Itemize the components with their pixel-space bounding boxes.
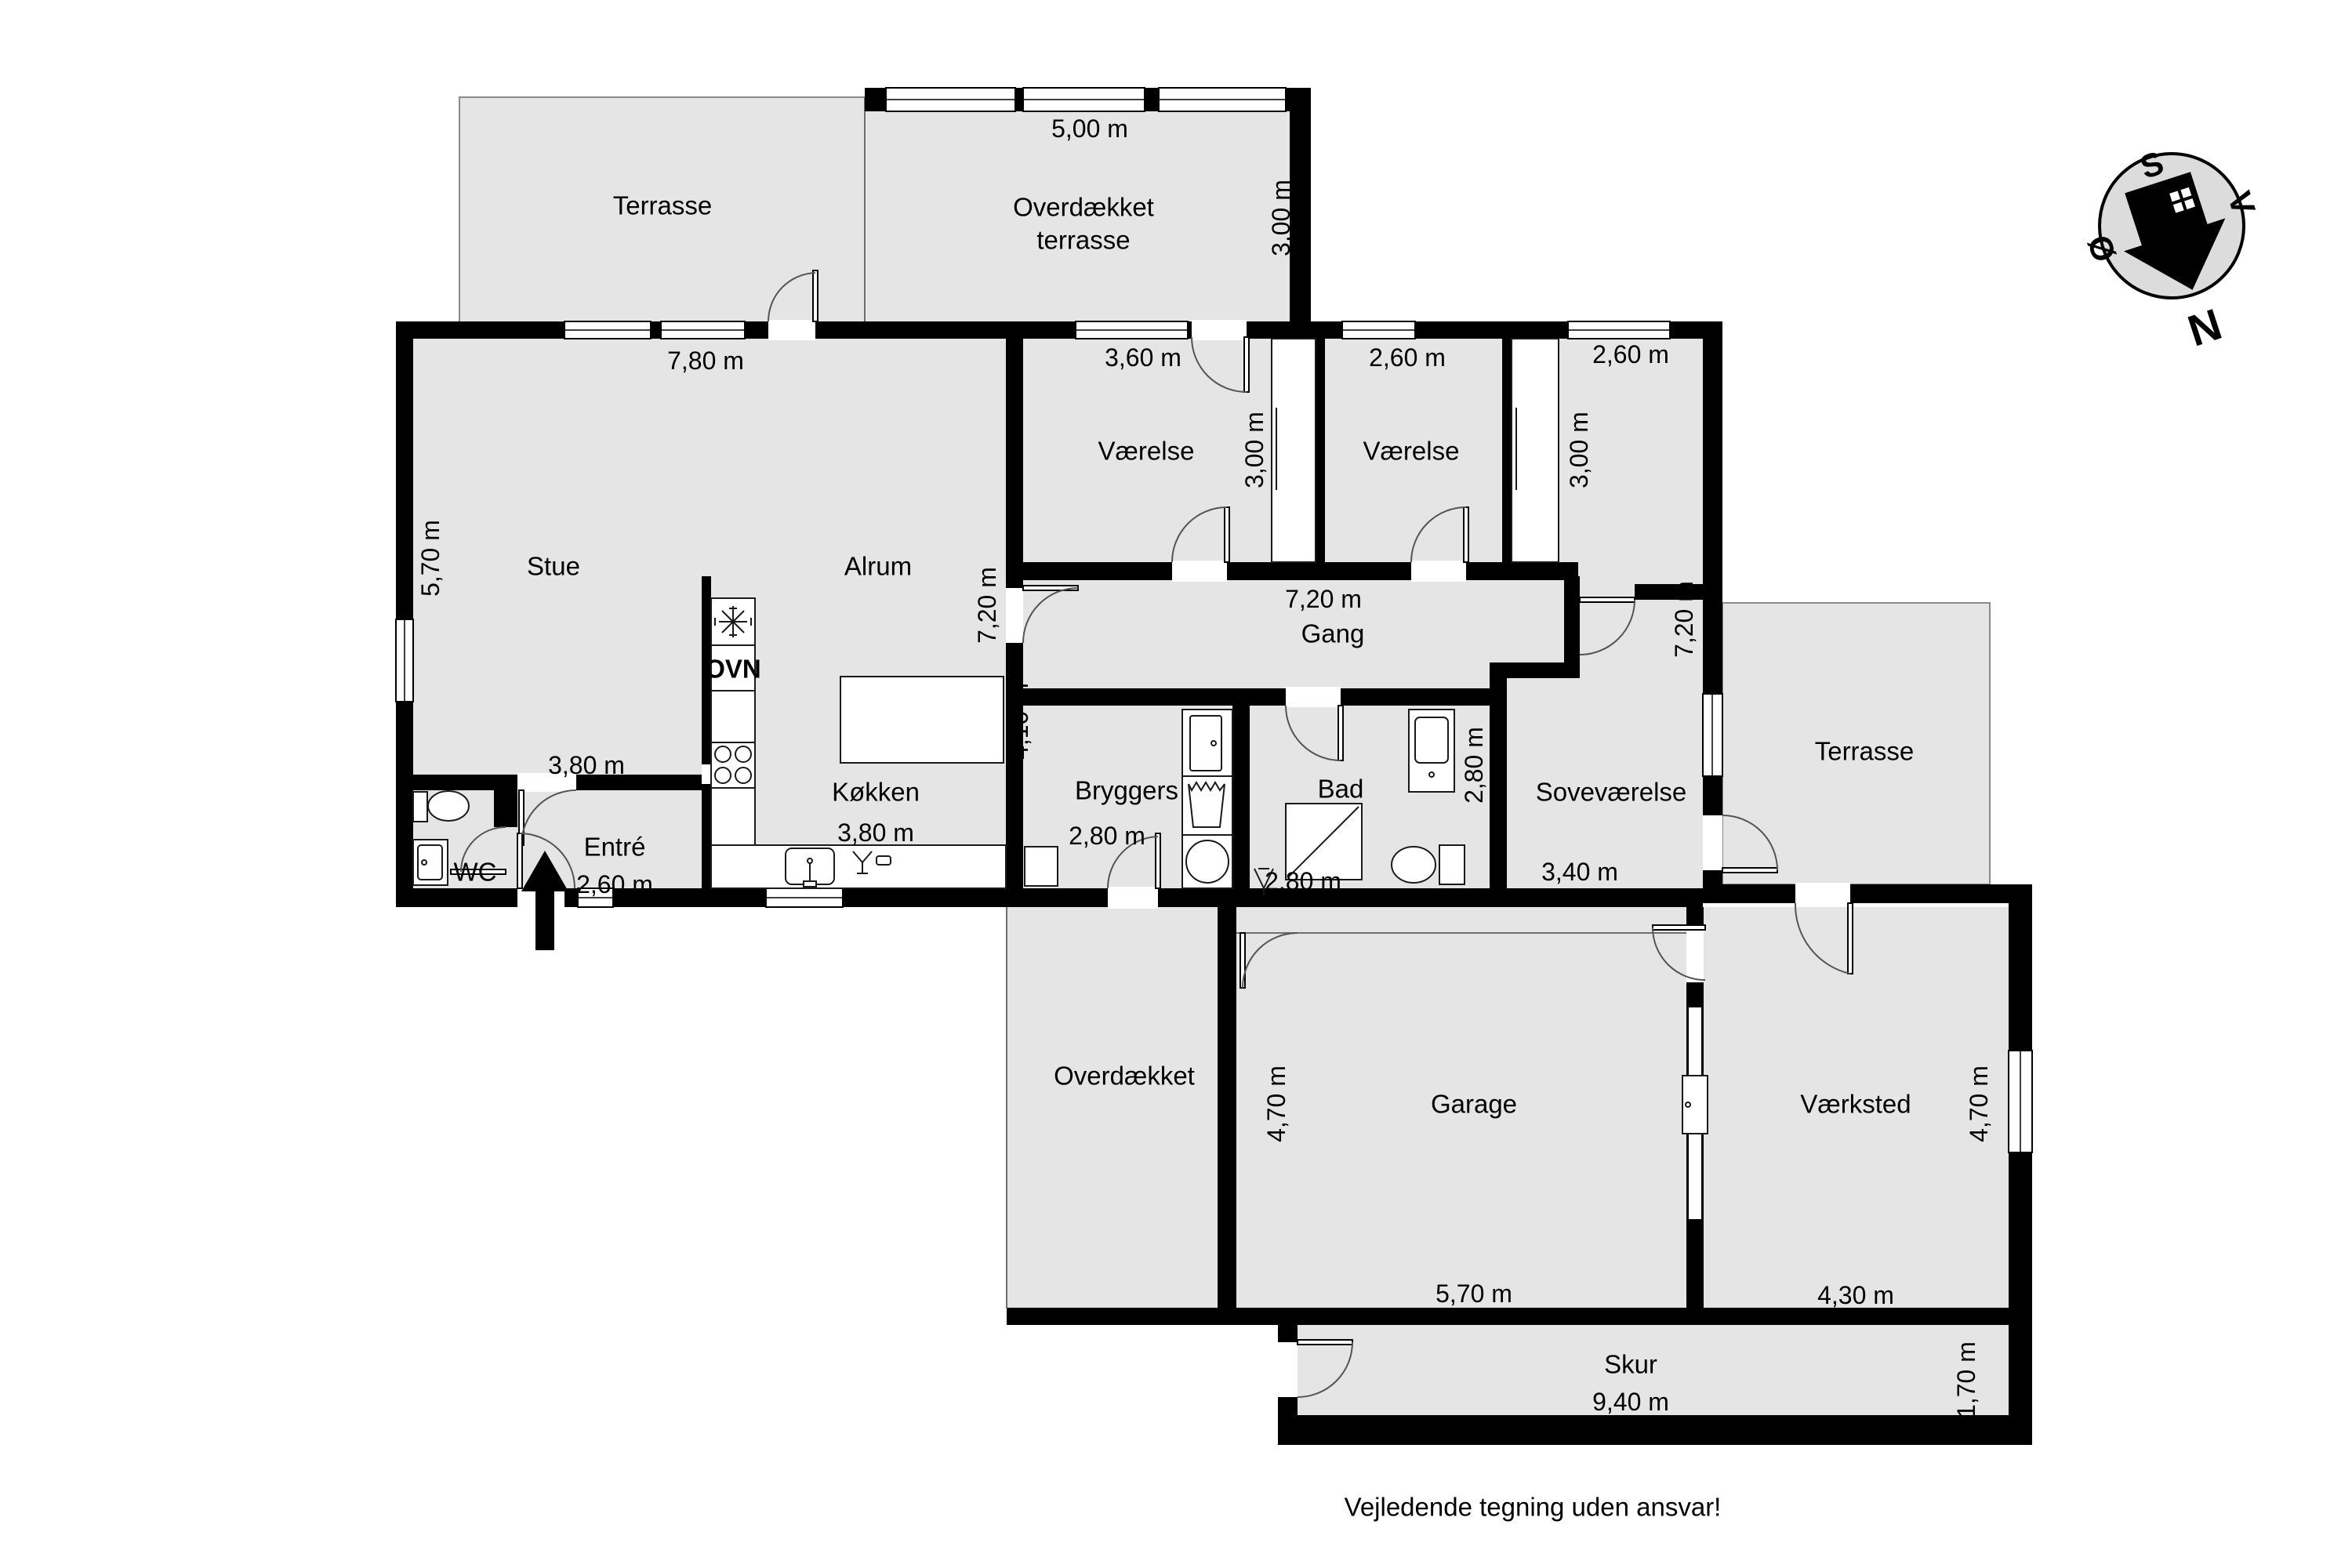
closet-vaerelse3: [1512, 339, 1559, 562]
wall-house-left: [396, 321, 413, 906]
label-dim-3-00-v3: 3,00 m: [1565, 412, 1593, 488]
label-dim-1-70: 1,70 m: [1952, 1341, 1980, 1418]
floor-plan-page: S V Ø N TerrasseOverdækketterrasseStueAl…: [0, 0, 2352, 1568]
window: [1342, 321, 1415, 339]
label-dim-3-00-ct: 3,00 m: [1267, 180, 1295, 256]
kitchen-counter: [711, 845, 1006, 888]
label-koekken: Køkken: [832, 778, 920, 807]
stove-icon: [711, 742, 755, 788]
label-sovevaerelse: Soveværelse: [1536, 778, 1687, 807]
label-skur: Skur: [1604, 1350, 1657, 1379]
wall-gang-stub: [1564, 576, 1580, 678]
label-dim-3-80-koekken: 3,80 m: [837, 818, 914, 847]
wall-garage-left: [1218, 907, 1236, 1325]
wall-gang-bottom: [1023, 688, 1490, 706]
label-overdaekket-terrasse-1: Overdækket: [1013, 193, 1154, 222]
label-entre: Entré: [584, 833, 646, 862]
wall-block-right: [2009, 884, 2032, 1445]
wall-v2-v3: [1502, 339, 1512, 562]
label-overdaekket-terrasse-2: terrasse: [1036, 226, 1130, 255]
window: [396, 619, 413, 702]
window: [2009, 1051, 2032, 1152]
label-bad: Bad: [1318, 775, 1364, 804]
bath-toilet-icon: [1392, 845, 1465, 884]
label-dim-5-70-garage: 5,70 m: [1436, 1279, 1512, 1308]
label-dim-7-20-gang: 7,20 m: [1285, 585, 1362, 613]
label-vaerelse-2: Værelse: [1363, 437, 1460, 466]
compass-north: N: [2182, 299, 2227, 355]
window: [1568, 321, 1670, 339]
wall-bad-sove: [1490, 678, 1507, 888]
label-dim-4-70-garage: 4,70 m: [1262, 1065, 1290, 1142]
label-garage: Garage: [1431, 1090, 1517, 1119]
label-vaerelse-1: Værelse: [1098, 437, 1195, 466]
bath-vanity-icon: [1409, 710, 1454, 792]
label-dim-9-40: 9,40 m: [1592, 1388, 1669, 1416]
label-dim-3-80-stue: 3,80 m: [548, 751, 625, 779]
wc-sink-icon: [413, 840, 448, 885]
window: [661, 321, 745, 339]
label-overdaekket: Overdækket: [1054, 1062, 1195, 1091]
window: [1023, 88, 1145, 111]
floor-plan-drawing: S V Ø N TerrasseOverdækketterrasseStueAl…: [0, 0, 2352, 1568]
label-disclaimer: Vejledende tegning uden ansvar!: [1345, 1493, 1722, 1522]
gv-door-panel: [1682, 1076, 1708, 1134]
label-dim-2-80-bad: 2,80 m: [1265, 867, 1341, 895]
washing-machine-icon: [1182, 835, 1232, 888]
label-dim-3-60-v1: 3,60 m: [1105, 343, 1181, 372]
wall-block-bottom: [1007, 1308, 2009, 1325]
window: [1703, 694, 1722, 776]
window: [1159, 88, 1286, 111]
wall-under-terrace: [1719, 884, 2009, 903]
label-dim-5-00: 5,00 m: [1051, 114, 1128, 143]
bryggers-cabinet: [1025, 847, 1058, 886]
label-terrasse-right: Terrasse: [1815, 737, 1915, 766]
compass-rose: S V Ø N: [2059, 119, 2299, 379]
label-dim-2-60-entre: 2,60 m: [576, 870, 653, 898]
label-dim-2-80-bryggers: 2,80 m: [1069, 822, 1145, 850]
label-gang: Gang: [1301, 619, 1365, 648]
label-dim-4-70-vaerksted: 4,70 m: [1965, 1065, 1993, 1142]
label-bryggers: Bryggers: [1075, 776, 1178, 805]
wall-kitchen-peninsula: [702, 576, 711, 888]
label-dim-7-20-alrum: 7,20 m: [973, 567, 1001, 644]
kitchen-cabinet: [711, 691, 755, 742]
wall-v1-v2: [1316, 339, 1325, 562]
window: [766, 888, 843, 907]
label-dim-5-70-stue: 5,70 m: [416, 520, 445, 597]
label-dim-4-30: 4,30 m: [1817, 1281, 1894, 1309]
label-dim-3-40: 3,40 m: [1541, 858, 1618, 886]
window: [1076, 321, 1188, 339]
wall-sove-top-left: [1490, 662, 1564, 678]
label-dim-2-80-sove: 2,80 m: [1460, 727, 1488, 804]
wall-skur-bottom: [1278, 1415, 2032, 1445]
label-dim-2-60-v2: 2,60 m: [1369, 343, 1446, 372]
kitchen-sink-icon: [786, 848, 834, 887]
window: [886, 88, 1015, 111]
label-dim-2-60-v3: 2,60 m: [1592, 340, 1669, 368]
wall-bryggers-bad: [1232, 706, 1250, 888]
label-dim-7-80: 7,80 m: [667, 347, 744, 375]
bryggers-tall-cabinet: [1182, 710, 1232, 776]
label-vaerksted: Værksted: [1800, 1090, 1911, 1119]
fridge-icon: [711, 598, 755, 645]
label-dim-3-00-v1: 3,00 m: [1240, 412, 1269, 488]
label-ovn: OVN: [705, 655, 761, 684]
closet-vaerelse1: [1272, 339, 1316, 562]
wall-gang-top: [1023, 562, 1578, 580]
label-alrum: Alrum: [844, 552, 912, 581]
wall-wc-divider: [494, 790, 517, 827]
laundry-sink-icon: [1182, 776, 1232, 835]
window: [564, 321, 651, 339]
label-wc: WC: [454, 858, 497, 887]
label-terrasse-top: Terrasse: [613, 191, 713, 220]
kitchen-island: [840, 677, 1004, 763]
label-dim-4-10: 4,10 m: [1005, 683, 1033, 760]
label-dim-7-20-right: 7,20 m: [1670, 581, 1698, 658]
toilet-icon: [413, 791, 469, 822]
label-stue: Stue: [527, 552, 580, 581]
